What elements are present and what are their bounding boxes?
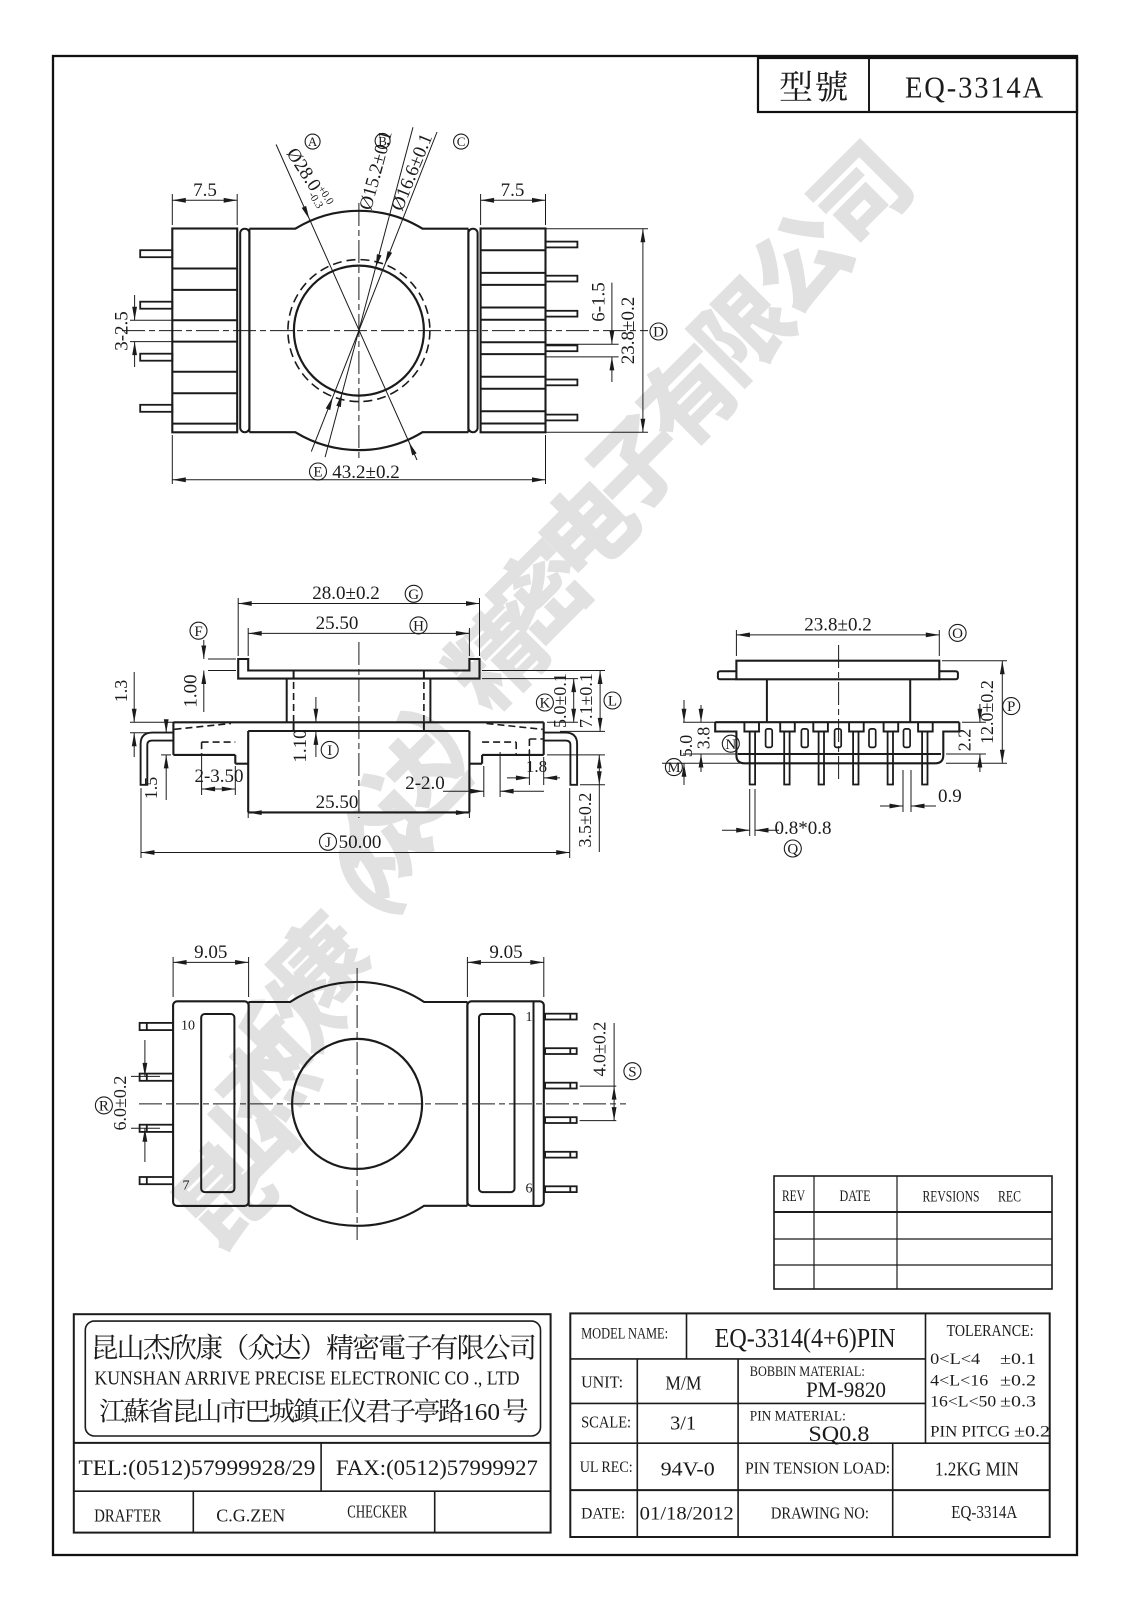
svg-text:REV: REV	[782, 1188, 806, 1205]
svg-text:3.5±0.2: 3.5±0.2	[575, 793, 595, 848]
svg-text:2-2.0: 2-2.0	[405, 773, 445, 794]
svg-text:UNIT:: UNIT:	[581, 1373, 623, 1392]
svg-text:6-1.5: 6-1.5	[589, 282, 610, 322]
svg-text:DRAFTER: DRAFTER	[94, 1506, 161, 1526]
svg-text:7: 7	[183, 1179, 190, 1194]
svg-text:25.50: 25.50	[316, 613, 359, 634]
svg-text:EQ-3314A: EQ-3314A	[951, 1502, 1017, 1522]
svg-text:SCALE:: SCALE:	[581, 1413, 631, 1432]
svg-text:1.2KG MIN: 1.2KG MIN	[935, 1459, 1019, 1481]
svg-text:4<L<16: 4<L<16	[930, 1373, 988, 1390]
svg-text:94V-0: 94V-0	[661, 1459, 715, 1481]
svg-text:7.5: 7.5	[193, 180, 217, 201]
svg-text:3/1: 3/1	[670, 1413, 696, 1435]
svg-text:0.9: 0.9	[938, 786, 962, 807]
svg-text:KUNSHAN ARRIVE PRECISE ELECTRO: KUNSHAN ARRIVE PRECISE ELECTRONIC CO ., …	[95, 1368, 520, 1390]
svg-text:43.2±0.2: 43.2±0.2	[332, 462, 399, 483]
svg-text:REC: REC	[998, 1189, 1021, 1206]
svg-text:R: R	[99, 1099, 109, 1115]
svg-text:I: I	[327, 743, 332, 759]
svg-text:01/18/2012: 01/18/2012	[640, 1504, 734, 1525]
svg-text:5.0: 5.0	[676, 735, 696, 758]
svg-text:28.0±0.2: 28.0±0.2	[312, 583, 379, 604]
svg-text:DRAWING NO:: DRAWING NO:	[771, 1504, 869, 1523]
svg-text:L: L	[608, 694, 617, 710]
svg-text:±0.3: ±0.3	[1000, 1394, 1036, 1411]
svg-text:DATE: DATE	[840, 1188, 871, 1205]
svg-text:PIN PITCG: PIN PITCG	[930, 1424, 1010, 1441]
svg-text:SQ0.8: SQ0.8	[808, 1421, 869, 1446]
svg-text:N: N	[725, 737, 736, 753]
svg-text:F: F	[194, 624, 202, 640]
svg-text:23.8±0.2: 23.8±0.2	[618, 297, 639, 364]
svg-text:UL REC:: UL REC:	[580, 1459, 633, 1476]
svg-text:2.2: 2.2	[955, 729, 975, 752]
svg-text:CHECKER: CHECKER	[347, 1502, 407, 1522]
svg-text:E: E	[313, 465, 322, 481]
svg-text:Q: Q	[787, 842, 798, 858]
svg-text:K: K	[539, 696, 550, 712]
svg-text:9.05: 9.05	[489, 942, 522, 963]
svg-text:FAX:(0512)57999927: FAX:(0512)57999927	[336, 1455, 538, 1480]
svg-text:1: 1	[526, 1010, 533, 1025]
svg-text:1.5: 1.5	[141, 777, 161, 800]
svg-text:D: D	[653, 325, 664, 341]
svg-text:50.00: 50.00	[339, 832, 382, 853]
svg-text:2-3.50: 2-3.50	[194, 766, 243, 787]
svg-text:7.5: 7.5	[501, 180, 525, 201]
svg-text:EQ-3314A: EQ-3314A	[905, 70, 1045, 105]
svg-text:TEL:(0512)57999928/29: TEL:(0512)57999928/29	[78, 1455, 315, 1480]
svg-text:9.05: 9.05	[194, 942, 227, 963]
svg-text:J: J	[325, 835, 331, 851]
svg-text:1.8: 1.8	[526, 757, 547, 776]
svg-text:16<L<50: 16<L<50	[930, 1394, 996, 1411]
svg-text:PM-9820: PM-9820	[806, 1377, 886, 1402]
svg-text:A: A	[308, 134, 318, 149]
svg-text:7.1±0.1: 7.1±0.1	[576, 673, 596, 728]
svg-text:REVSIONS: REVSIONS	[923, 1189, 980, 1206]
svg-text:H: H	[413, 619, 424, 635]
svg-text:M/M: M/M	[665, 1373, 701, 1395]
svg-text:10: 10	[181, 1019, 195, 1034]
svg-text:C: C	[457, 134, 466, 149]
svg-text:G: G	[408, 587, 419, 603]
svg-text:6: 6	[526, 1182, 533, 1197]
svg-text:M: M	[667, 760, 680, 776]
svg-text:±0.2: ±0.2	[1000, 1373, 1036, 1390]
svg-text:MODEL NAME:: MODEL NAME:	[581, 1326, 668, 1343]
svg-text:23.8±0.2: 23.8±0.2	[804, 615, 871, 636]
svg-text:1.00: 1.00	[181, 674, 202, 707]
svg-text:C.G.ZEN: C.G.ZEN	[216, 1506, 285, 1526]
svg-text:1.3: 1.3	[111, 680, 131, 703]
svg-text:3.8: 3.8	[694, 727, 714, 750]
svg-text:EQ-3314(4+6)PIN: EQ-3314(4+6)PIN	[715, 1323, 896, 1353]
svg-text:4.0±0.2: 4.0±0.2	[590, 1022, 610, 1077]
svg-text:O: O	[952, 626, 963, 642]
svg-text:160: 160	[462, 1400, 500, 1426]
svg-text:1.10: 1.10	[290, 729, 311, 762]
svg-text:S: S	[628, 1064, 636, 1080]
svg-text:TOLERANCE:: TOLERANCE:	[947, 1321, 1034, 1340]
svg-text:±0.1: ±0.1	[1000, 1351, 1036, 1368]
svg-text:0<L<4: 0<L<4	[930, 1351, 980, 1368]
svg-text:0.8*0.8: 0.8*0.8	[775, 818, 832, 839]
svg-text:3-2.5: 3-2.5	[111, 311, 132, 351]
svg-text:±0.2: ±0.2	[1014, 1424, 1050, 1441]
svg-text:P: P	[1007, 699, 1015, 715]
svg-text:25.50: 25.50	[316, 792, 359, 813]
svg-text:6.0±0.2: 6.0±0.2	[110, 1076, 130, 1131]
svg-text:PIN TENSION LOAD:: PIN TENSION LOAD:	[745, 1459, 890, 1478]
svg-text:DATE:: DATE:	[581, 1506, 625, 1523]
